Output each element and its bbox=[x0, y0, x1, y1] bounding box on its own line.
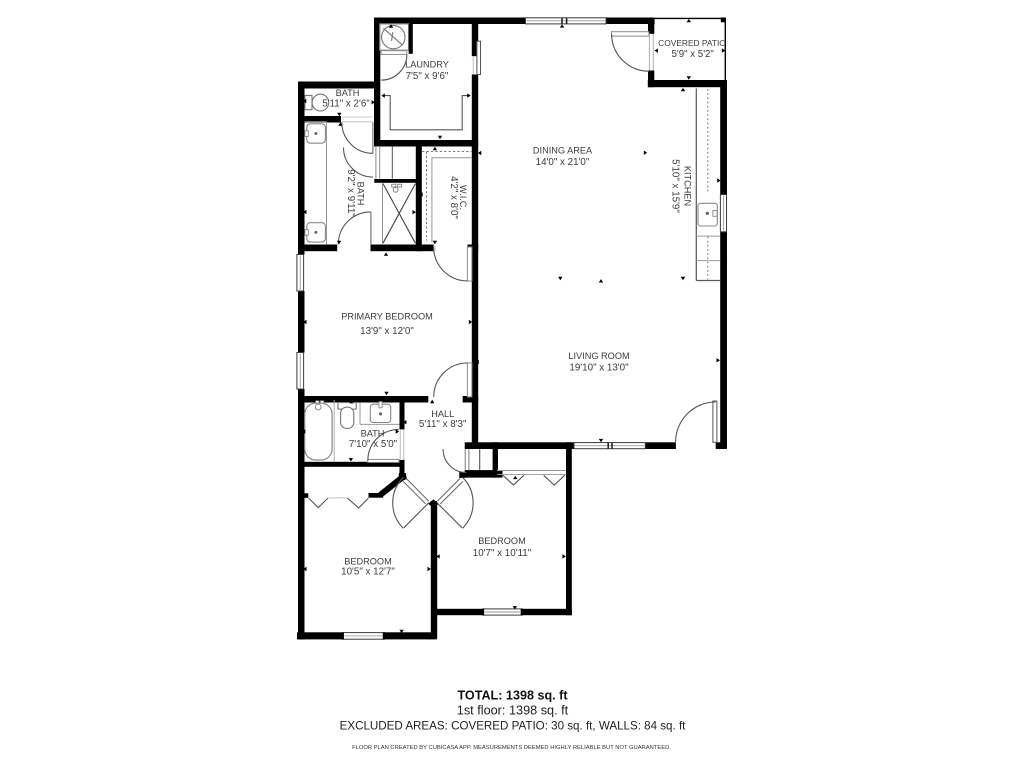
svg-text:5'11" x 8'3": 5'11" x 8'3" bbox=[419, 419, 467, 430]
svg-text:LIVING ROOM: LIVING ROOM bbox=[568, 351, 629, 361]
svg-text:LAUNDRY: LAUNDRY bbox=[405, 60, 449, 70]
svg-text:9'2" x 9'11": 9'2" x 9'11" bbox=[345, 169, 356, 217]
svg-text:7'10" x 5'0": 7'10" x 5'0" bbox=[349, 439, 398, 450]
svg-text:4'2" x 8'0": 4'2" x 8'0" bbox=[448, 176, 459, 219]
svg-text:BEDROOM: BEDROOM bbox=[478, 536, 525, 546]
svg-text:BEDROOM: BEDROOM bbox=[344, 557, 391, 567]
svg-text:FLOOR PLAN CREATED BY CUBICASA: FLOOR PLAN CREATED BY CUBICASA APP. MEAS… bbox=[352, 745, 671, 751]
svg-text:1st floor: 1398 sq. ft: 1st floor: 1398 sq. ft bbox=[457, 704, 569, 718]
svg-text:19'10" x 13'0": 19'10" x 13'0" bbox=[569, 363, 629, 374]
svg-text:DINING AREA: DINING AREA bbox=[533, 146, 593, 156]
svg-text:13'9" x 12'0": 13'9" x 12'0" bbox=[360, 326, 414, 337]
svg-text:10'5" x 12'7": 10'5" x 12'7" bbox=[341, 567, 395, 578]
svg-text:5'11" x 2'6": 5'11" x 2'6" bbox=[322, 99, 370, 110]
svg-text:TOTAL: 1398 sq. ft: TOTAL: 1398 sq. ft bbox=[457, 689, 568, 703]
svg-text:5'10" x 15'9": 5'10" x 15'9" bbox=[670, 159, 681, 213]
svg-text:5'9" x 5'2": 5'9" x 5'2" bbox=[672, 49, 715, 60]
svg-text:BATH: BATH bbox=[361, 429, 385, 439]
svg-text:BATH: BATH bbox=[336, 88, 360, 98]
svg-text:PRIMARY BEDROOM: PRIMARY BEDROOM bbox=[341, 312, 433, 322]
svg-text:COVERED PATIO: COVERED PATIO bbox=[658, 38, 726, 48]
svg-text:KITCHEN: KITCHEN bbox=[682, 166, 692, 206]
svg-text:EXCLUDED AREAS: COVERED PATIO:: EXCLUDED AREAS: COVERED PATIO: 30 sq. ft… bbox=[340, 719, 687, 732]
svg-text:7'5" x 9'6": 7'5" x 9'6" bbox=[406, 71, 449, 82]
svg-text:BATH: BATH bbox=[356, 182, 366, 206]
svg-text:HALL: HALL bbox=[431, 409, 454, 419]
svg-text:14'0" x 21'0": 14'0" x 21'0" bbox=[536, 157, 590, 168]
svg-text:10'7" x 10'11": 10'7" x 10'11" bbox=[473, 548, 532, 559]
